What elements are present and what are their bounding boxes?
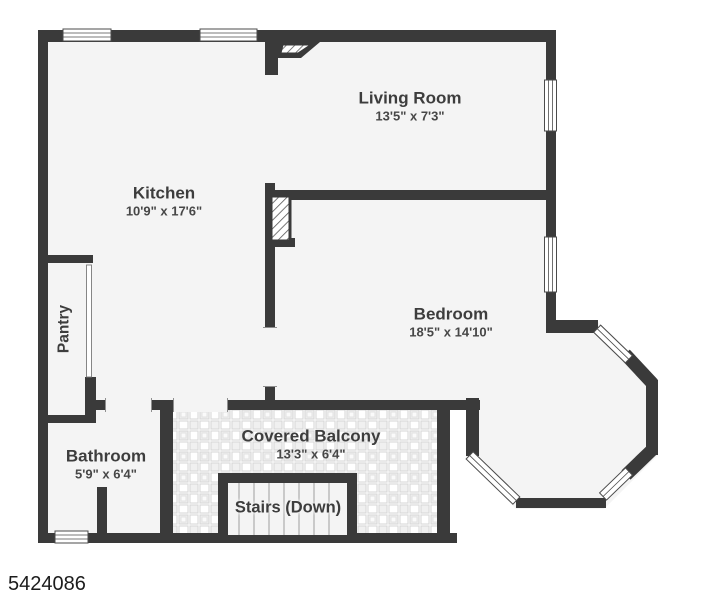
room-label-bathroom: Bathroom 5'9" x 6'4" xyxy=(66,445,146,483)
room-label-living-room: Living Room 13'5" x 7'3" xyxy=(359,87,462,125)
window-bathroom xyxy=(55,531,88,543)
bathroom-dims: 5'9" x 6'4" xyxy=(66,467,146,483)
kitchen-name: Kitchen xyxy=(126,182,202,203)
room-label-stairs: Stairs (Down) xyxy=(235,498,341,519)
bedroom-name: Bedroom xyxy=(409,303,493,324)
room-label-pantry: Pantry xyxy=(54,305,73,353)
plan-id-number: 5424086 xyxy=(8,573,86,596)
stairs-name: Stairs (Down) xyxy=(235,498,341,519)
window-living-right xyxy=(545,80,557,131)
floor-plan-drawing xyxy=(0,0,711,600)
pantry-name: Pantry xyxy=(54,305,73,353)
pantry-door xyxy=(87,265,92,377)
window-bedroom-right xyxy=(545,237,557,292)
chimney-flue xyxy=(271,196,290,241)
living-room-dims: 13'5" x 7'3" xyxy=(359,109,462,125)
bedroom-dims: 18'5" x 14'10" xyxy=(409,325,493,341)
covered-balcony-name: Covered Balcony xyxy=(242,425,381,446)
floor-plan-page: Living Room 13'5" x 7'3" Kitchen 10'9" x… xyxy=(0,0,711,600)
window-top-right xyxy=(200,29,257,41)
room-label-covered-balcony: Covered Balcony 13'3" x 6'4" xyxy=(242,425,381,463)
room-label-kitchen: Kitchen 10'9" x 17'6" xyxy=(126,182,202,220)
kitchen-dims: 10'9" x 17'6" xyxy=(126,204,202,220)
covered-balcony-dims: 13'3" x 6'4" xyxy=(242,447,381,463)
living-room-name: Living Room xyxy=(359,87,462,108)
bathroom-name: Bathroom xyxy=(66,445,146,466)
window-top-left xyxy=(63,29,111,41)
room-label-bedroom: Bedroom 18'5" x 14'10" xyxy=(409,303,493,341)
